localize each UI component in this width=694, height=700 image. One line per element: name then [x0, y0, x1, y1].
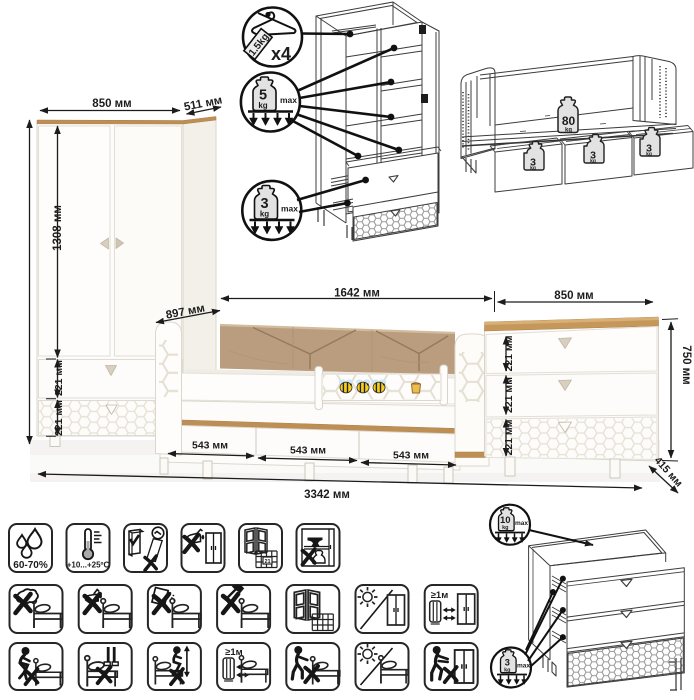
svg-text:80: 80 — [562, 114, 576, 128]
svg-text:kg: kg — [590, 159, 596, 165]
svg-text:kg: kg — [502, 525, 508, 531]
svg-text:221 мм: 221 мм — [503, 419, 515, 455]
svg-text:max: max — [281, 204, 298, 214]
svg-text:1642 мм: 1642 мм — [334, 288, 380, 300]
svg-text:max: max — [515, 520, 528, 527]
svg-text:3342 мм: 3342 мм — [304, 489, 350, 501]
svg-text:+10...+25ºC: +10...+25ºC — [67, 561, 110, 570]
svg-text:221 мм: 221 мм — [503, 335, 515, 371]
svg-text:kg: kg — [260, 210, 269, 219]
svg-text:x4: x4 — [271, 44, 291, 64]
svg-text:221 мм: 221 мм — [53, 400, 65, 436]
svg-text:≥1м: ≥1м — [431, 590, 449, 601]
svg-text:850 мм: 850 мм — [554, 290, 593, 302]
svg-text:60-70%: 60-70% — [13, 560, 48, 571]
svg-text:kg: kg — [565, 128, 572, 134]
svg-text:kg: kg — [646, 152, 652, 158]
svg-text:kg: kg — [530, 166, 536, 172]
svg-text:221 мм: 221 мм — [503, 377, 515, 413]
svg-text:543 мм: 543 мм — [290, 445, 326, 457]
svg-text:21: 21 — [264, 559, 270, 565]
svg-text:543 мм: 543 мм — [393, 450, 429, 462]
svg-text:221 мм: 221 мм — [53, 360, 65, 396]
svg-text:max: max — [280, 95, 297, 105]
svg-text:850 мм: 850 мм — [92, 98, 131, 110]
svg-text:kg: kg — [504, 668, 510, 674]
svg-text:750 мм: 750 мм — [680, 345, 692, 384]
svg-text:max: max — [517, 663, 530, 670]
svg-text:543 мм: 543 мм — [192, 440, 228, 452]
svg-text:kg: kg — [258, 101, 267, 110]
svg-text:1308 мм: 1308 мм — [52, 205, 64, 251]
